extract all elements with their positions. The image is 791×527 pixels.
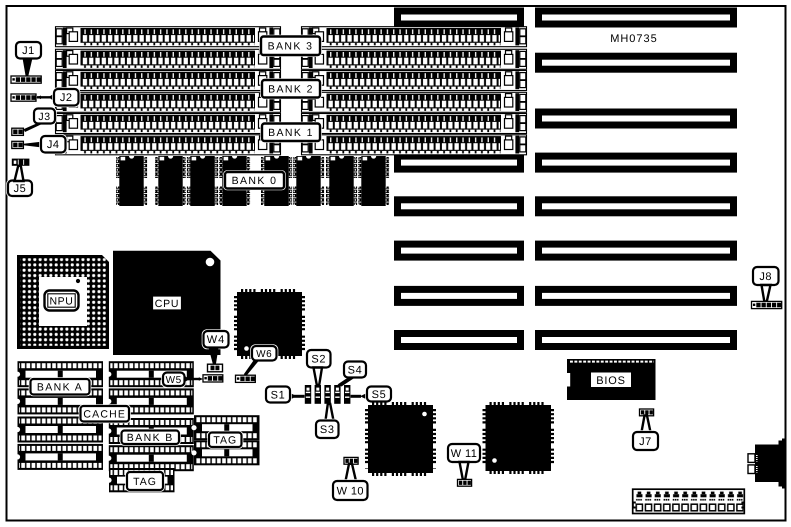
svg-text:W 11: W 11 bbox=[451, 448, 477, 460]
svg-text:CPU: CPU bbox=[155, 298, 180, 310]
svg-text:S2: S2 bbox=[311, 354, 326, 366]
svg-text:W4: W4 bbox=[207, 334, 226, 346]
svg-text:J4: J4 bbox=[47, 139, 60, 151]
svg-text:BANK 1: BANK 1 bbox=[268, 127, 314, 139]
svg-text:J3: J3 bbox=[38, 111, 50, 123]
svg-text:W6: W6 bbox=[256, 349, 272, 360]
svg-text:S3: S3 bbox=[320, 424, 335, 436]
svg-text:BANK 2: BANK 2 bbox=[268, 84, 314, 96]
svg-text:TAG: TAG bbox=[213, 435, 237, 447]
svg-text:J1: J1 bbox=[22, 45, 35, 57]
svg-text:BANK A: BANK A bbox=[37, 382, 83, 394]
svg-text:J5: J5 bbox=[14, 183, 27, 195]
svg-text:W5: W5 bbox=[166, 375, 182, 386]
svg-text:S1: S1 bbox=[271, 389, 286, 401]
svg-text:S5: S5 bbox=[372, 389, 387, 401]
svg-text:CACHE: CACHE bbox=[83, 409, 126, 421]
svg-text:J8: J8 bbox=[759, 271, 772, 283]
svg-text:W 10: W 10 bbox=[337, 485, 364, 497]
svg-text:BANK 0: BANK 0 bbox=[232, 175, 278, 187]
svg-text:J7: J7 bbox=[639, 436, 652, 448]
svg-text:J2: J2 bbox=[60, 92, 73, 104]
svg-text:NPU: NPU bbox=[50, 296, 74, 308]
svg-text:S4: S4 bbox=[348, 364, 363, 376]
svg-text:BANK B: BANK B bbox=[127, 432, 174, 444]
svg-text:TAG: TAG bbox=[133, 476, 157, 488]
svg-text:BIOS: BIOS bbox=[596, 375, 626, 387]
svg-text:MH0735: MH0735 bbox=[610, 33, 658, 45]
svg-text:BANK 3: BANK 3 bbox=[268, 41, 314, 53]
